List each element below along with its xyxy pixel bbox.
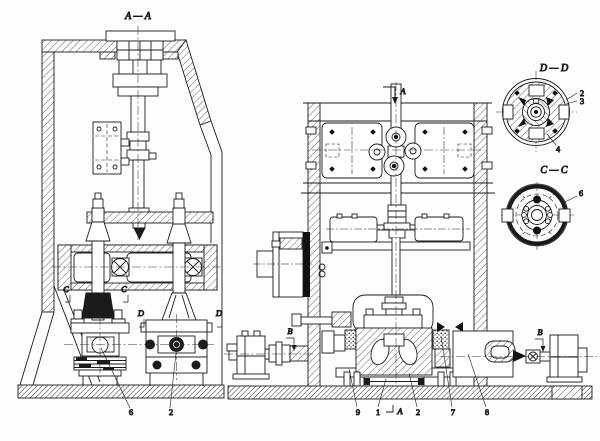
rubber-boot <box>82 293 114 318</box>
callout-2: 2 <box>169 407 173 417</box>
cut-mark-c-right: C <box>121 284 127 294</box>
cover-plate-right <box>415 123 474 178</box>
callout-9: 9 <box>356 407 360 417</box>
cut-mark-a-base: A <box>396 406 403 416</box>
engineering-drawing-page: A — A <box>0 0 600 441</box>
cut-mark-b-left: B <box>287 326 292 336</box>
coupling-pin <box>149 153 156 159</box>
base-plate-front <box>228 386 592 399</box>
detail-cc-title: C — C <box>540 165 568 176</box>
machine-assembly-drawing: A — A <box>0 0 600 441</box>
cut-mark-c-left: C <box>63 284 69 294</box>
detail-dd-title: D — D <box>539 63 569 74</box>
upper-bearing-block <box>113 74 167 87</box>
base-plate-left <box>18 385 224 398</box>
callout-8: 8 <box>485 407 489 417</box>
callout-2-front: 2 <box>416 407 420 417</box>
cut-mark-a-top: A <box>399 86 406 96</box>
callout-1: 1 <box>376 407 380 417</box>
callout-dd-3: 3 <box>580 96 584 106</box>
callout-6: 6 <box>129 407 133 417</box>
bonnet-flange <box>364 315 422 328</box>
cut-mark-d-right: D <box>215 308 223 318</box>
left-support-block <box>237 336 265 378</box>
section-aa-title: A — A <box>124 11 152 22</box>
callout-cc-6: 6 <box>579 188 583 198</box>
right-support-block <box>550 335 578 382</box>
cut-mark-b-right: B <box>537 327 542 337</box>
top-rail <box>87 212 213 223</box>
callout-7: 7 <box>451 407 455 417</box>
cut-mark-d-left: D <box>137 308 145 318</box>
